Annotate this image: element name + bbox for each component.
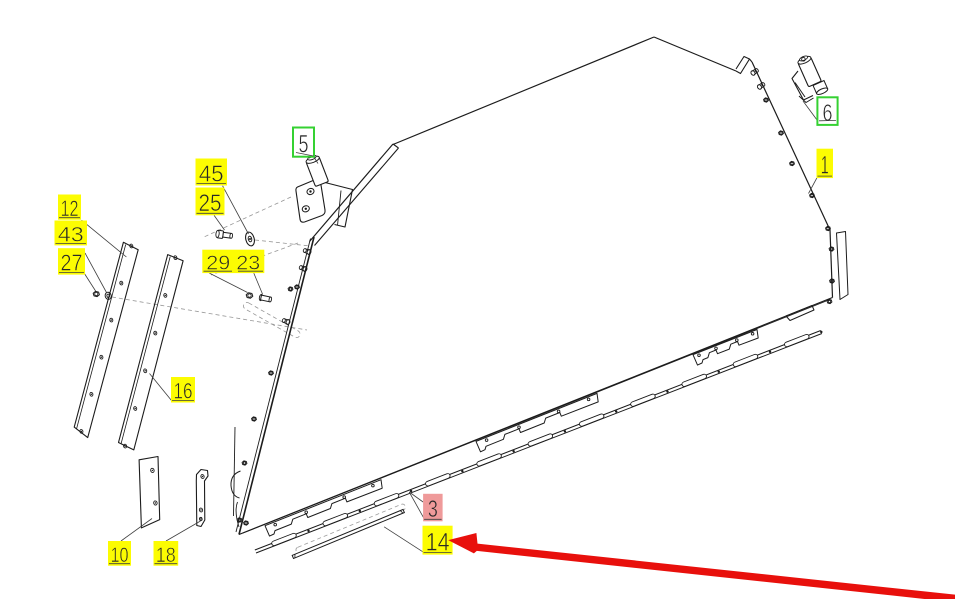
svg-text:12: 12	[61, 196, 79, 221]
svg-text:16: 16	[174, 379, 193, 404]
svg-text:14: 14	[426, 528, 450, 556]
svg-text:1: 1	[821, 152, 829, 180]
svg-text:45: 45	[199, 160, 224, 186]
svg-text:27: 27	[61, 250, 83, 276]
svg-text:6: 6	[823, 100, 833, 127]
